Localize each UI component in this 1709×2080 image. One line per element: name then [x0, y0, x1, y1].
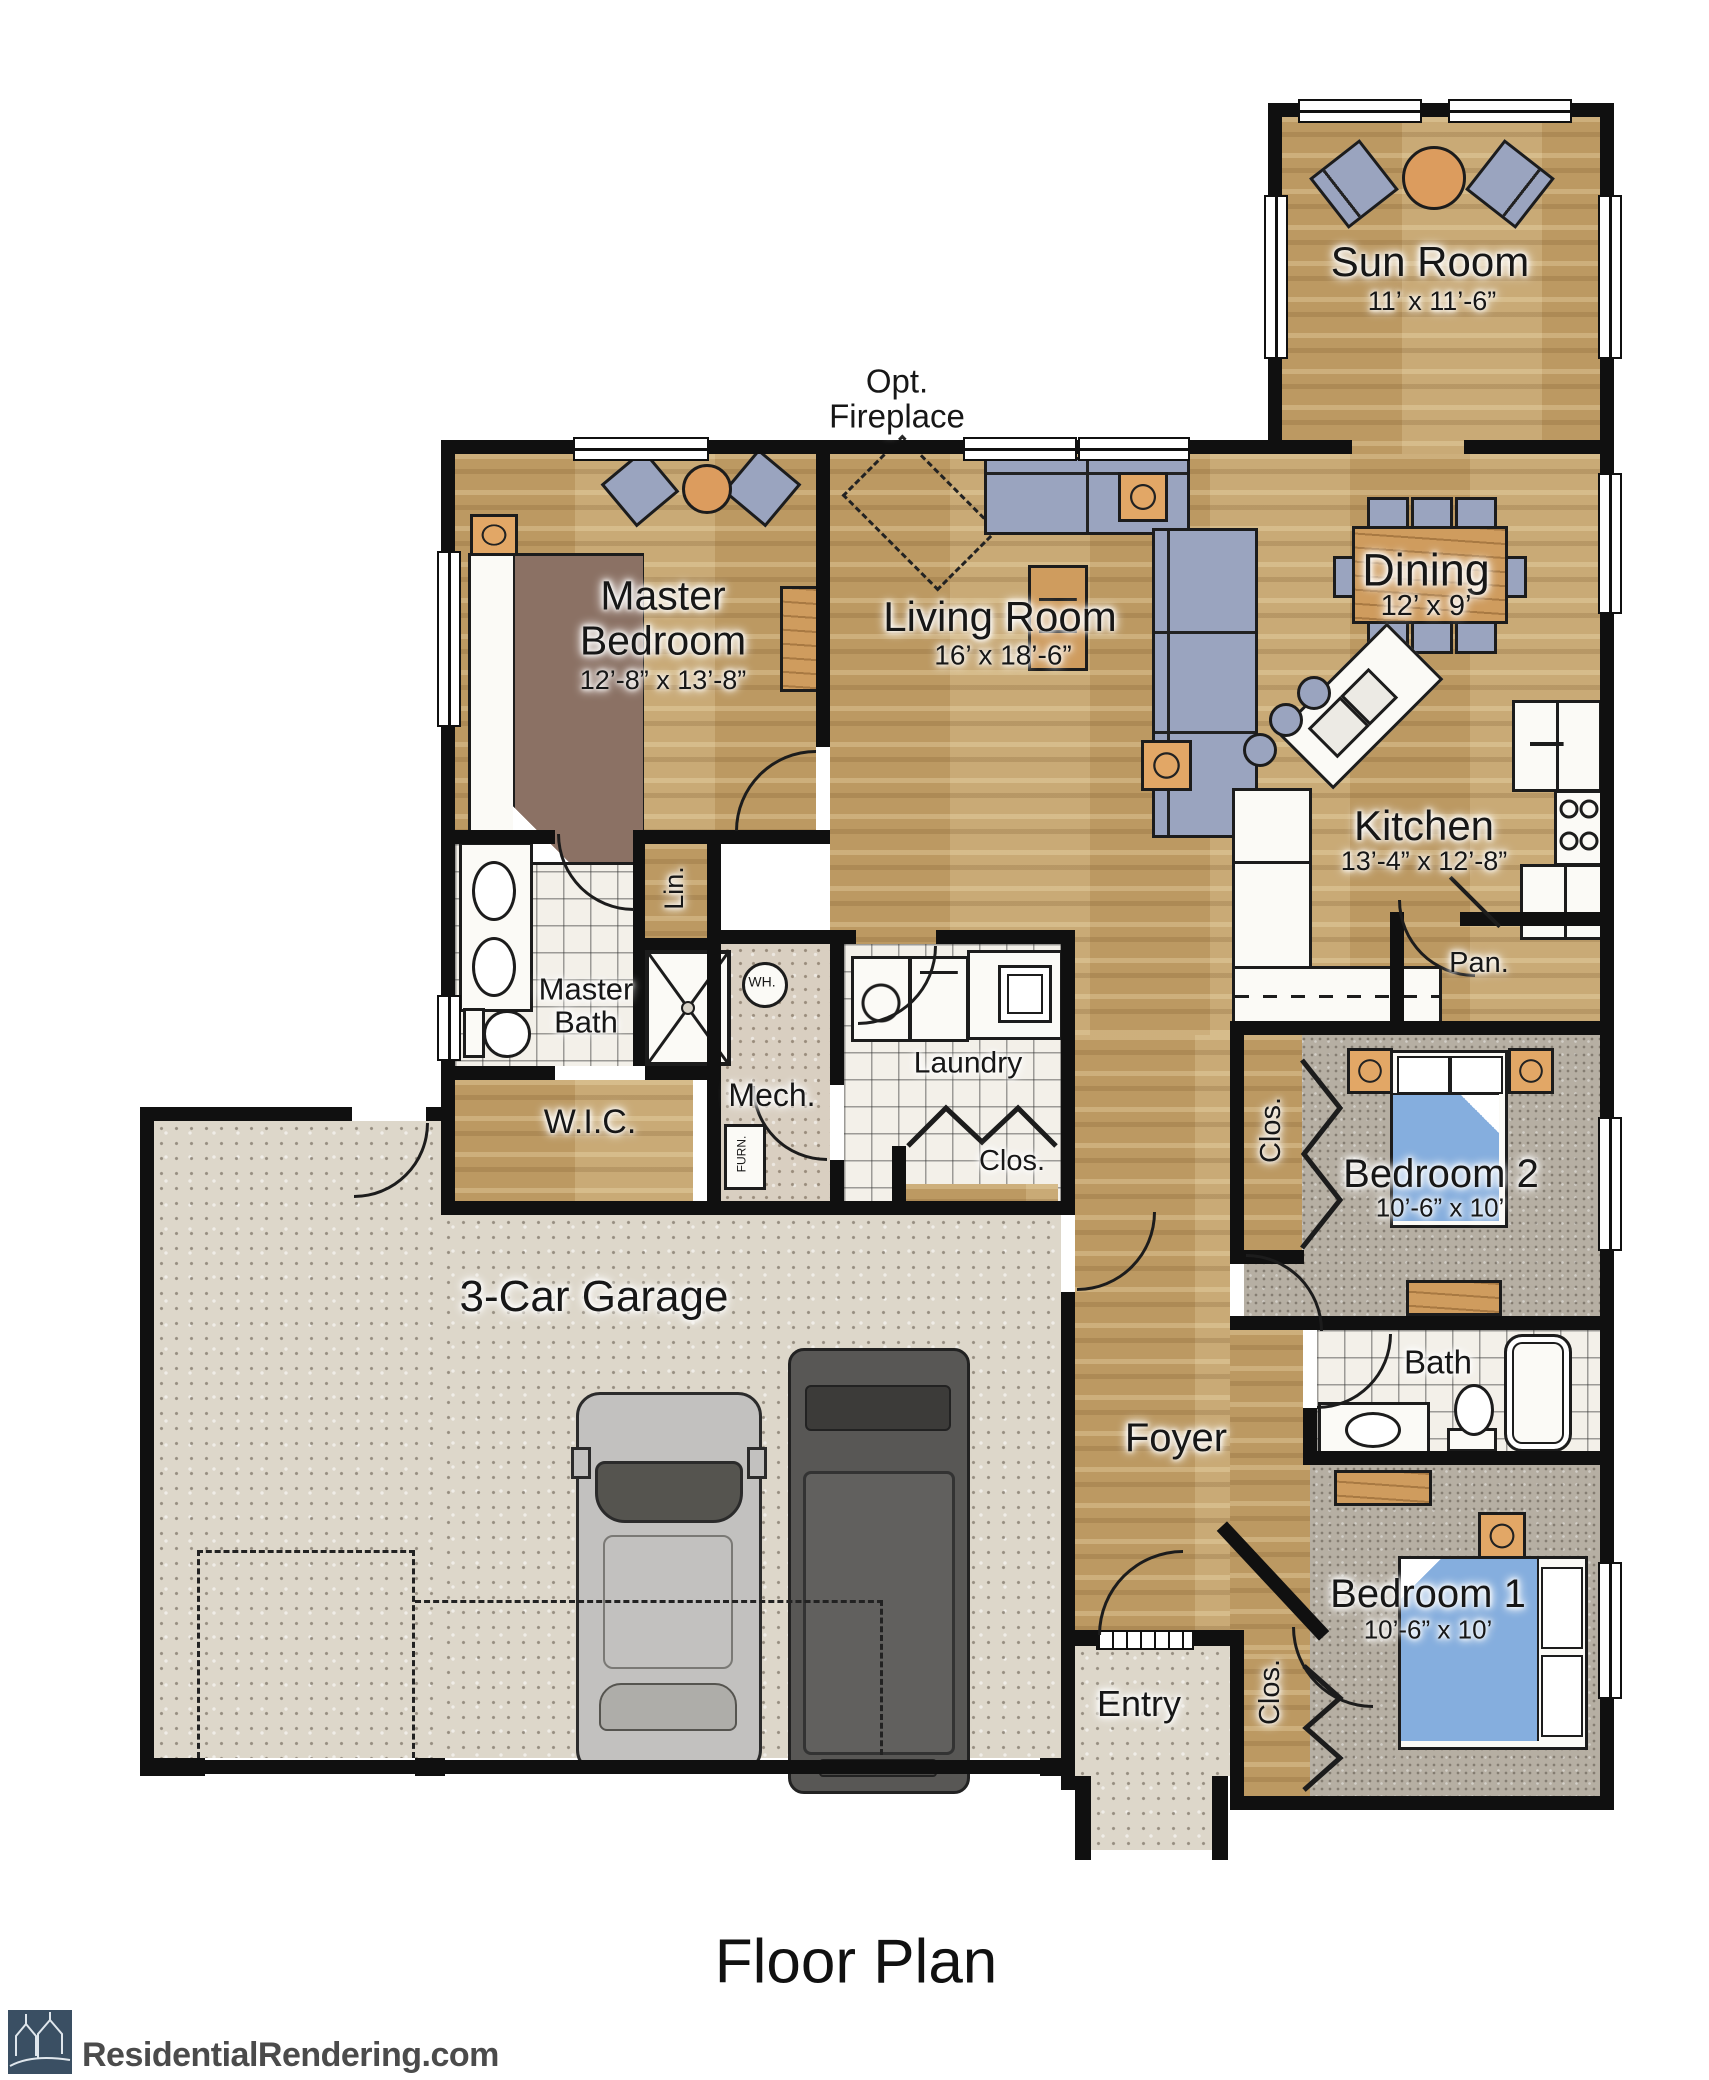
bedroom2-nightstand-right [1508, 1048, 1554, 1094]
garage-door-setback-line [415, 1600, 883, 1603]
label-wic: W.I.C. [544, 1105, 637, 1141]
dims-bedroom2: 10’-6” x 10’ [1376, 1194, 1505, 1221]
wall-stoop-left [1075, 1776, 1091, 1860]
label-water-heater: WH. [748, 975, 775, 990]
living-side-table-top [1118, 472, 1168, 522]
wall-garage-bottom-e [1040, 1758, 1075, 1776]
window-sunroom-right [1598, 195, 1622, 359]
kitchen-fridge [1512, 700, 1602, 792]
window-living-top2 [1078, 437, 1190, 461]
wall-mech-top [721, 930, 844, 944]
window-masterbath-left [437, 995, 461, 1061]
wall-garage-bottom-w [140, 1758, 205, 1776]
logo-text: ResidentialRendering.com [82, 2036, 499, 2075]
wall-garage-bottom-m [415, 1758, 445, 1776]
label-foyer: Foyer [1125, 1417, 1227, 1459]
master-vanity [459, 842, 533, 1012]
label-sun-room: Sun Room [1331, 240, 1529, 284]
logo-houses-icon [8, 2010, 72, 2074]
wall-masterbath-top [441, 830, 555, 844]
bedroom1-side-table [1478, 1512, 1526, 1560]
label-mech: Mech. [728, 1079, 815, 1113]
bedroom2-pillow2 [1450, 1056, 1503, 1094]
bifold-bedroom1-closet [1300, 1664, 1344, 1792]
bath-toilet-bowl [1454, 1384, 1494, 1436]
wall-stoop-right [1212, 1776, 1228, 1860]
wall-right-outer [1600, 103, 1614, 1810]
garage-car [576, 1392, 762, 1774]
laundry-closet-shelf [906, 1184, 1058, 1201]
kitchen-stool3 [1297, 676, 1331, 710]
page-title: Floor Plan [715, 1927, 998, 1998]
garage-bay3-dashed [197, 1550, 415, 1758]
entry-stoop [1091, 1776, 1212, 1850]
dims-master-bedroom: 12’-8” x 13’-8” [580, 666, 747, 694]
wall-entry-front-e [1190, 1630, 1244, 1646]
master-toilet-tank [463, 1008, 485, 1058]
bedroom2-dresser [1406, 1280, 1502, 1316]
wall-sunroom-stub-right [1464, 440, 1600, 454]
bedroom2-nightstand-left [1347, 1048, 1393, 1094]
label-dining: Dining [1362, 546, 1490, 593]
label-furnace: FURN. [736, 1136, 749, 1173]
living-side-table-bottom [1141, 740, 1192, 791]
label-bedroom2: Bedroom 2 [1343, 1153, 1539, 1195]
label-master-bath-2: Bath [554, 1007, 618, 1040]
bath-sink [1345, 1412, 1401, 1448]
label-entry: Entry [1097, 1685, 1181, 1723]
truck-cab-window [805, 1385, 951, 1431]
wall-mech-right-upper [830, 930, 844, 1085]
window-dining-right [1598, 473, 1622, 614]
wall-linen-right [707, 844, 721, 944]
kitchen-stove [1554, 790, 1604, 866]
master-toilet-bowl [483, 1010, 531, 1058]
kitchen-counter-right [1520, 864, 1604, 940]
window-bedroom2-right [1598, 1117, 1622, 1251]
label-master-bedroom-2: Bedroom [580, 619, 746, 662]
bedroom1-dresser [1334, 1470, 1432, 1506]
car-mirror-right [747, 1447, 767, 1479]
laundry-sink-counter [967, 950, 1063, 1040]
car-rear-window [599, 1683, 737, 1731]
label-opt-fireplace-1: Opt. [866, 365, 928, 400]
wall-laundry-closet-left [892, 1146, 906, 1208]
wall-bath-wic-divider-w [441, 1066, 555, 1080]
wall-bath-left [1303, 1408, 1317, 1451]
wall-linen-left [633, 844, 645, 944]
wall-master-right [816, 454, 830, 747]
hall-to-bedroom1-floor [1230, 1465, 1310, 1654]
wall-bath-wic-divider-e [645, 1066, 707, 1080]
bedroom1-pillow1 [1541, 1567, 1583, 1649]
label-living-room: Living Room [883, 595, 1116, 639]
car-windshield [595, 1461, 743, 1523]
window-master-top [573, 437, 709, 461]
label-bedroom2-closet: Clos. [1256, 1097, 1286, 1163]
wall-service-block-bottom [441, 1201, 1075, 1215]
laundry-sink [998, 965, 1052, 1023]
wall-bedroom1-bottom [1230, 1796, 1614, 1810]
wall-entry-front-w [1075, 1630, 1096, 1646]
wall-garage-foyer-upper [1061, 930, 1075, 1210]
dims-sun-room: 11’ x 11’-6” [1368, 287, 1497, 315]
wall-kitchen-bedroom2 [1230, 1021, 1614, 1035]
wall-garage-left [140, 1107, 154, 1776]
label-bath: Bath [1404, 1346, 1472, 1381]
label-linen: Lin. [660, 866, 688, 910]
wall-garage-top-e [426, 1107, 455, 1121]
wall-foyer-bedroom2 [1230, 1021, 1244, 1250]
window-living-top1 [963, 437, 1077, 461]
master-dresser [780, 586, 820, 692]
master-sink2 [472, 937, 516, 997]
bifold-bedroom2-closet [1298, 1058, 1344, 1250]
kitchen-stool2 [1269, 703, 1303, 737]
dims-living-room: 16’ x 18’-6” [934, 640, 1071, 669]
label-kitchen: Kitchen [1354, 804, 1494, 848]
window-master-left [437, 551, 461, 727]
wall-garage-top-w [140, 1107, 352, 1121]
garage-door-1 [205, 1760, 419, 1774]
label-bedroom1-closet: Clos. [1255, 1659, 1285, 1725]
label-laundry: Laundry [914, 1047, 1022, 1079]
garage-door-2 [445, 1760, 1044, 1774]
label-pantry: Pan. [1449, 948, 1509, 978]
dims-dining: 12’ x 9’ [1381, 591, 1472, 621]
window-sunroom-top2 [1448, 99, 1572, 123]
bedroom2-pillow1 [1397, 1056, 1450, 1094]
garage-door-setback-right [880, 1600, 883, 1755]
wall-pantry-top [1460, 912, 1614, 926]
wall-garage-foyer-lower [1061, 1292, 1075, 1790]
master-table [682, 464, 732, 514]
hall-dropzone-counter [1232, 966, 1442, 1026]
dining-chair-b3 [1455, 620, 1497, 654]
wall-laundry-top-e [936, 930, 1075, 944]
wall-bath-bottom [1303, 1451, 1614, 1465]
wall-mech-left [707, 944, 721, 1215]
wall-bedroom1-closet-left [1230, 1640, 1244, 1810]
sunroom-table [1402, 146, 1466, 210]
label-garage: 3-Car Garage [459, 1274, 728, 1320]
bedroom1-pillow2 [1541, 1655, 1583, 1737]
foyer-floor [1075, 1035, 1230, 1630]
bath-vanity [1318, 1402, 1430, 1456]
dims-bedroom1: 10’-6” x 10’ [1364, 1616, 1493, 1643]
window-bedroom1-right [1598, 1562, 1622, 1699]
label-laundry-closet: Clos. [979, 1146, 1045, 1176]
bifold-laundry-closet [906, 1104, 1058, 1148]
master-sink1 [472, 861, 516, 921]
label-bedroom1: Bedroom 1 [1330, 1573, 1526, 1615]
stove-burners-icon [1557, 793, 1601, 863]
dims-kitchen: 13’-4” x 12’-8” [1341, 847, 1508, 875]
bath-tub [1504, 1334, 1572, 1452]
window-sunroom-top1 [1298, 99, 1422, 123]
truck-bed [803, 1471, 955, 1755]
label-master-bedroom-1: Master [600, 574, 725, 617]
logo [8, 2010, 72, 2074]
bedroom2-blanket-fold [1461, 1095, 1499, 1133]
wall-sunroom-stub-left [1268, 440, 1352, 454]
car-mirror-left [571, 1447, 591, 1479]
wall-master-bottom-east [633, 830, 830, 844]
label-opt-fireplace-2: Fireplace [829, 400, 965, 435]
wall-laundry-top-w [844, 930, 856, 944]
master-nightstand-top [470, 514, 518, 556]
floor-plan-page: Sun Room 11’ x 11’-6” Opt. Fireplace Mas… [0, 0, 1709, 2080]
label-master-bath-1: Master [539, 974, 634, 1007]
wall-bath-shower-divider [633, 944, 645, 1066]
wall-pantry-left [1390, 912, 1404, 1021]
garage-truck [788, 1348, 970, 1794]
dining-chair-b2 [1411, 620, 1453, 654]
window-sunroom-left [1264, 195, 1288, 359]
kitchen-stool1 [1243, 733, 1277, 767]
